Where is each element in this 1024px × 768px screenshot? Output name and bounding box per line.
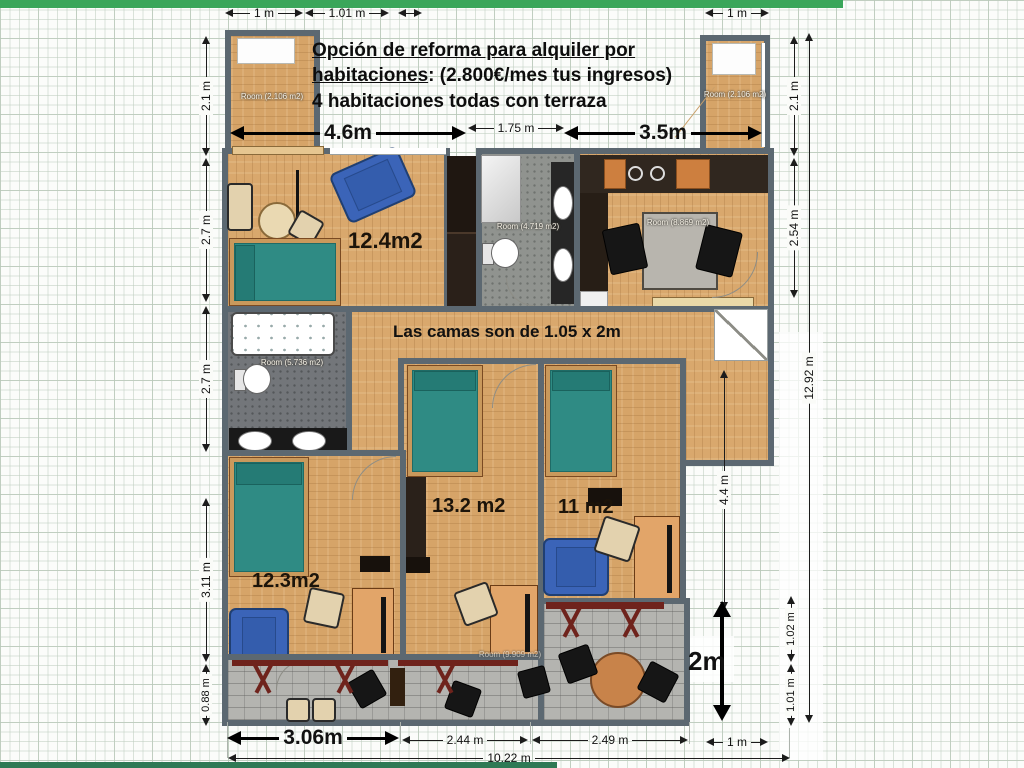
planter-box xyxy=(712,43,756,75)
teal-bed xyxy=(545,365,617,477)
dim-bottom-244: 2.44 m xyxy=(402,733,528,747)
bedroom-mid-area: 13.2 m2 xyxy=(432,495,505,518)
dim-left-311: 3.11 m xyxy=(198,498,214,662)
bedroom-bottom-left-area: 12.3m2 xyxy=(252,570,320,593)
bedroom-top-left-area: 12.4m2 xyxy=(348,228,423,254)
dim-right-254: 2.54 m xyxy=(786,158,802,298)
entrance-door xyxy=(714,309,768,361)
planter-box xyxy=(237,38,295,64)
dim-left-27-upper: 2.7 m xyxy=(198,158,214,302)
beds-note: Las camas son de 1.05 x 2m xyxy=(393,322,653,342)
extension-line xyxy=(530,722,531,744)
dim-width-35: 3.5m xyxy=(564,120,762,146)
awning-brace xyxy=(248,662,278,696)
cutting-board xyxy=(604,159,626,189)
awning-brace xyxy=(616,606,646,640)
terrace-top-right-label: Room (2.106 m2) xyxy=(700,90,770,100)
awning-brace xyxy=(330,662,360,696)
terrace-door-sill xyxy=(232,146,324,155)
window xyxy=(330,148,446,155)
dim-right-101: 1.01 m xyxy=(783,664,799,726)
tv xyxy=(360,556,390,572)
title-line2: habitaciones: (2.800€/mes tus ingresos) xyxy=(312,63,692,88)
dim-bottom-249: 2.49 m xyxy=(532,733,688,747)
dim-top-101m: 1.01 m xyxy=(305,6,389,20)
terrace-bottom-label: Room (9.909 m2) xyxy=(458,650,562,660)
wardrobe xyxy=(403,477,426,565)
dim-width-46: 4.6m xyxy=(230,120,466,146)
sink xyxy=(553,248,573,282)
dim-right-2m-label: 2m xyxy=(688,646,726,677)
dim-width-175: 1.75 m xyxy=(468,121,564,135)
extension-line xyxy=(400,722,401,744)
dim-right-1m-bottom: 1 m xyxy=(706,735,768,749)
vanity-counter xyxy=(551,162,576,304)
dim-top-1m-right: 1 m xyxy=(705,6,769,20)
desk xyxy=(634,516,680,602)
title-line3: 4 habitaciones todas con terraza xyxy=(312,89,692,114)
dim-right-44: 4.4 m xyxy=(716,370,732,610)
fridge xyxy=(580,291,608,307)
bedroom-right-area: 11 m2 xyxy=(558,496,614,519)
teal-bed xyxy=(229,238,341,306)
plan-title: Opción de reforma para alquiler por habi… xyxy=(312,38,692,114)
dim-right-102: 1.02 m xyxy=(783,596,799,662)
hob-burner xyxy=(650,166,665,181)
dim-left-088: 0.88 m xyxy=(198,664,214,726)
dim-bottom-306: 3.06m xyxy=(227,725,399,751)
tv xyxy=(404,557,430,573)
desk xyxy=(352,588,394,662)
dim-small-arrow xyxy=(398,6,422,20)
shower xyxy=(481,155,521,223)
hob-burner xyxy=(628,166,643,181)
title-line1: Opción de reforma para alquiler por xyxy=(312,38,692,63)
sink xyxy=(292,431,326,451)
dim-left-27-lower: 2.7 m xyxy=(198,306,214,452)
bathroom-top-label: Room (4.719 m2) xyxy=(478,222,578,232)
sink xyxy=(553,186,573,220)
terrace-cushion xyxy=(312,698,336,722)
round-table xyxy=(590,652,646,708)
dim-left-21: 2.1 m xyxy=(198,36,214,156)
dim-bottom-1022: 10.22 m xyxy=(228,751,790,765)
desk-chair xyxy=(303,587,346,630)
planter-post xyxy=(390,668,405,706)
dim-top-1m-left: 1 m xyxy=(225,6,303,20)
awning-brace xyxy=(430,662,460,696)
teal-bed xyxy=(407,365,483,477)
awning-brace xyxy=(556,606,586,640)
bathroom-mid-label: Room (5.736 m2) xyxy=(240,358,344,368)
cutting-board xyxy=(676,159,710,189)
terrace-cushion xyxy=(286,698,310,722)
teal-bed xyxy=(229,457,309,577)
dim-right-1292: 12.92 m xyxy=(801,33,817,723)
floorplan-canvas: Room (2.106 m2) Room (2.106 m2) 12.4m2 R… xyxy=(0,0,1024,768)
toilet xyxy=(482,238,518,268)
toilet xyxy=(234,364,270,394)
sink xyxy=(238,431,272,451)
terrace-top-left-label: Room (2.106 m2) xyxy=(226,92,318,102)
bathtub xyxy=(231,312,335,356)
loveseat xyxy=(227,183,253,231)
kitchen-label: Room (8.869 m2) xyxy=(618,218,738,228)
extension-line xyxy=(689,722,690,744)
dim-right-21: 2.1 m xyxy=(786,36,802,156)
